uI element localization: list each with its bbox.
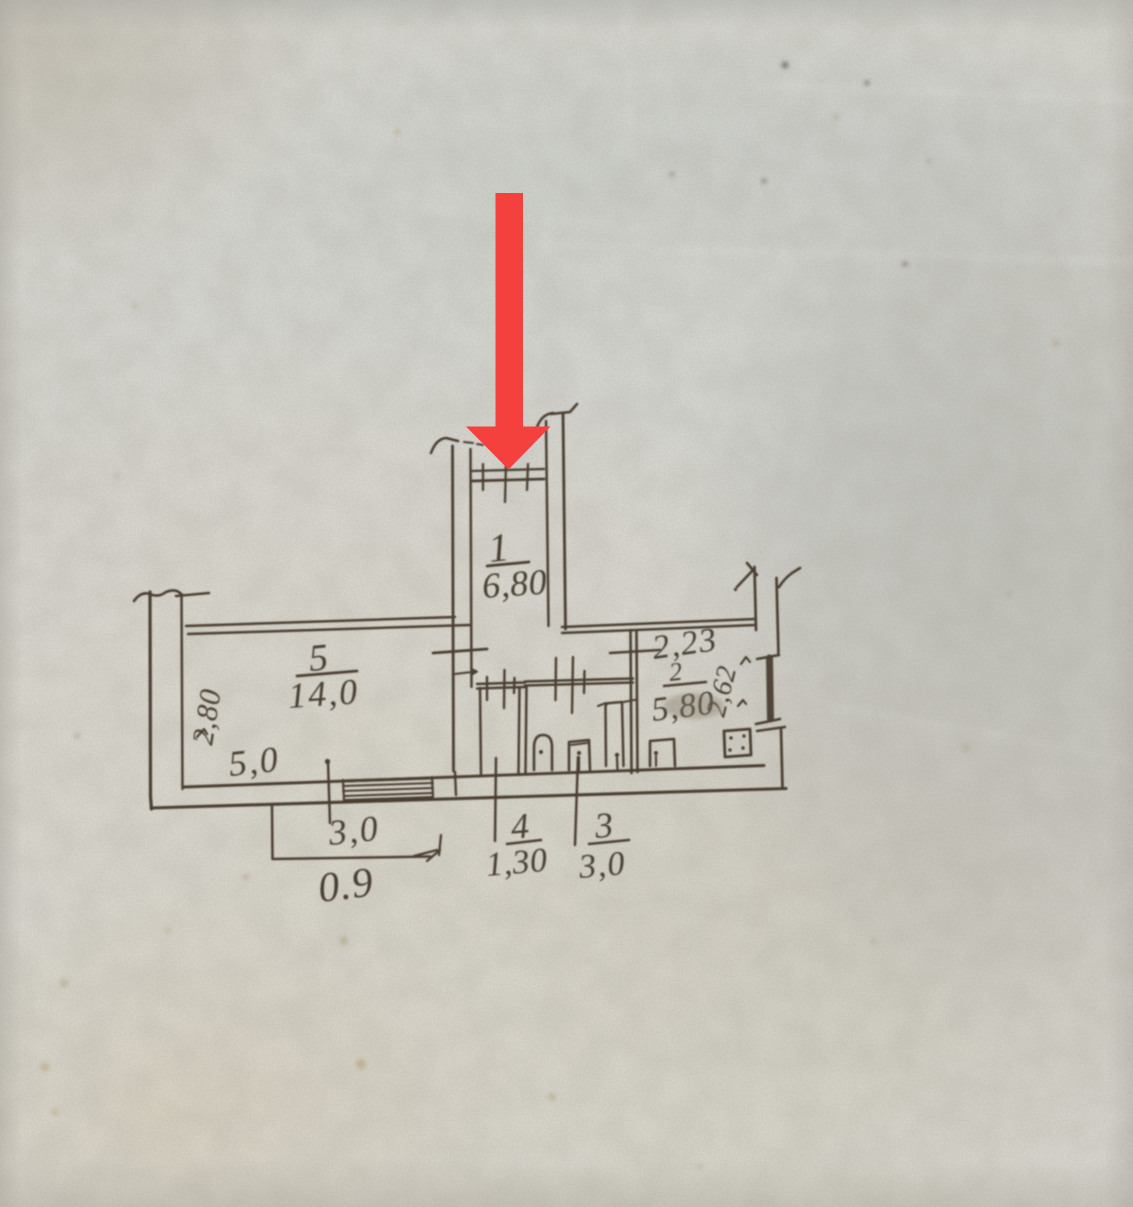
- svg-text:3,0: 3,0: [326, 808, 382, 853]
- svg-text:4: 4: [509, 806, 530, 847]
- svg-text:0.9: 0.9: [316, 860, 377, 912]
- svg-text:3: 3: [592, 805, 614, 847]
- svg-text:1,30: 1,30: [484, 842, 548, 884]
- svg-text:6,80: 6,80: [481, 562, 549, 606]
- svg-text:3,0: 3,0: [576, 845, 627, 886]
- svg-text:14,0: 14,0: [287, 671, 361, 716]
- svg-text:5,0: 5,0: [227, 739, 282, 784]
